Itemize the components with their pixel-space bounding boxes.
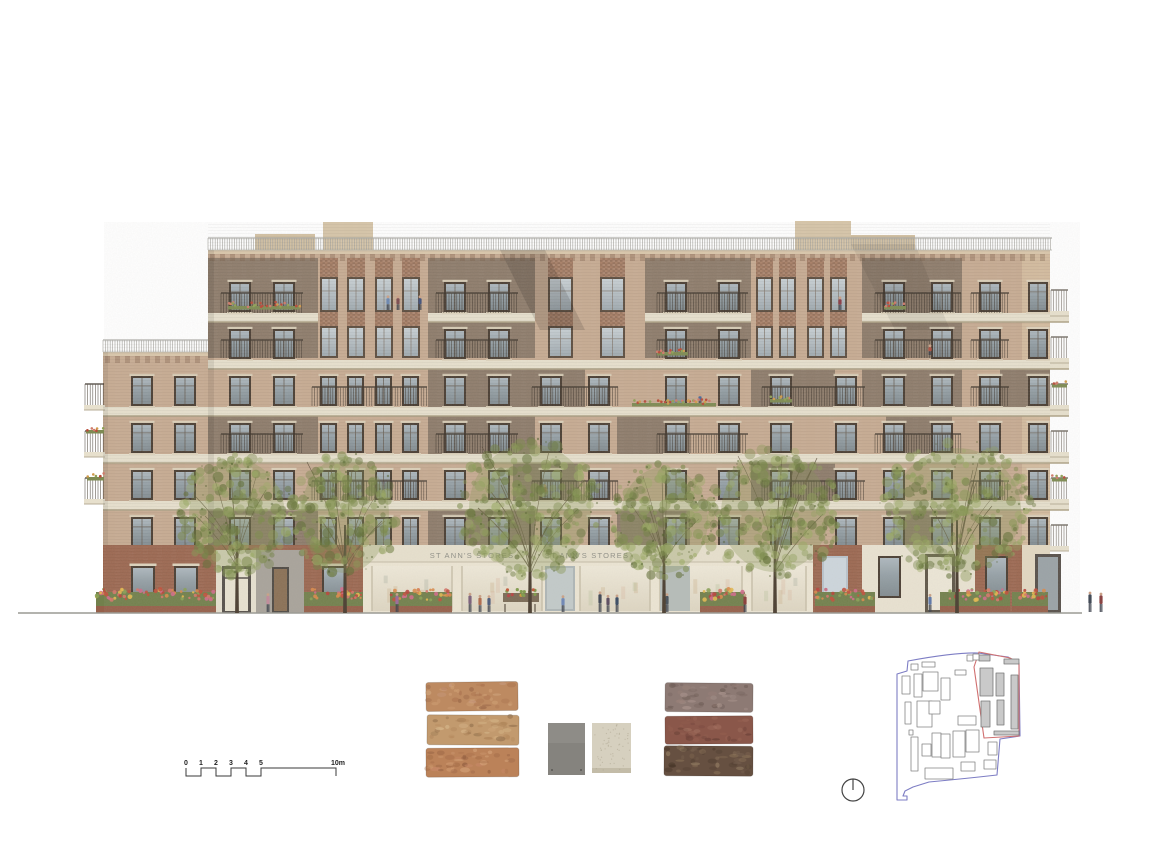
- svg-text:10m: 10m: [331, 760, 345, 767]
- svg-text:4: 4: [244, 760, 248, 767]
- svg-text:1: 1: [199, 760, 203, 767]
- svg-text:3: 3: [229, 760, 233, 767]
- svg-text:2: 2: [214, 760, 218, 767]
- svg-text:5: 5: [259, 760, 263, 767]
- svg-text:0: 0: [184, 760, 188, 767]
